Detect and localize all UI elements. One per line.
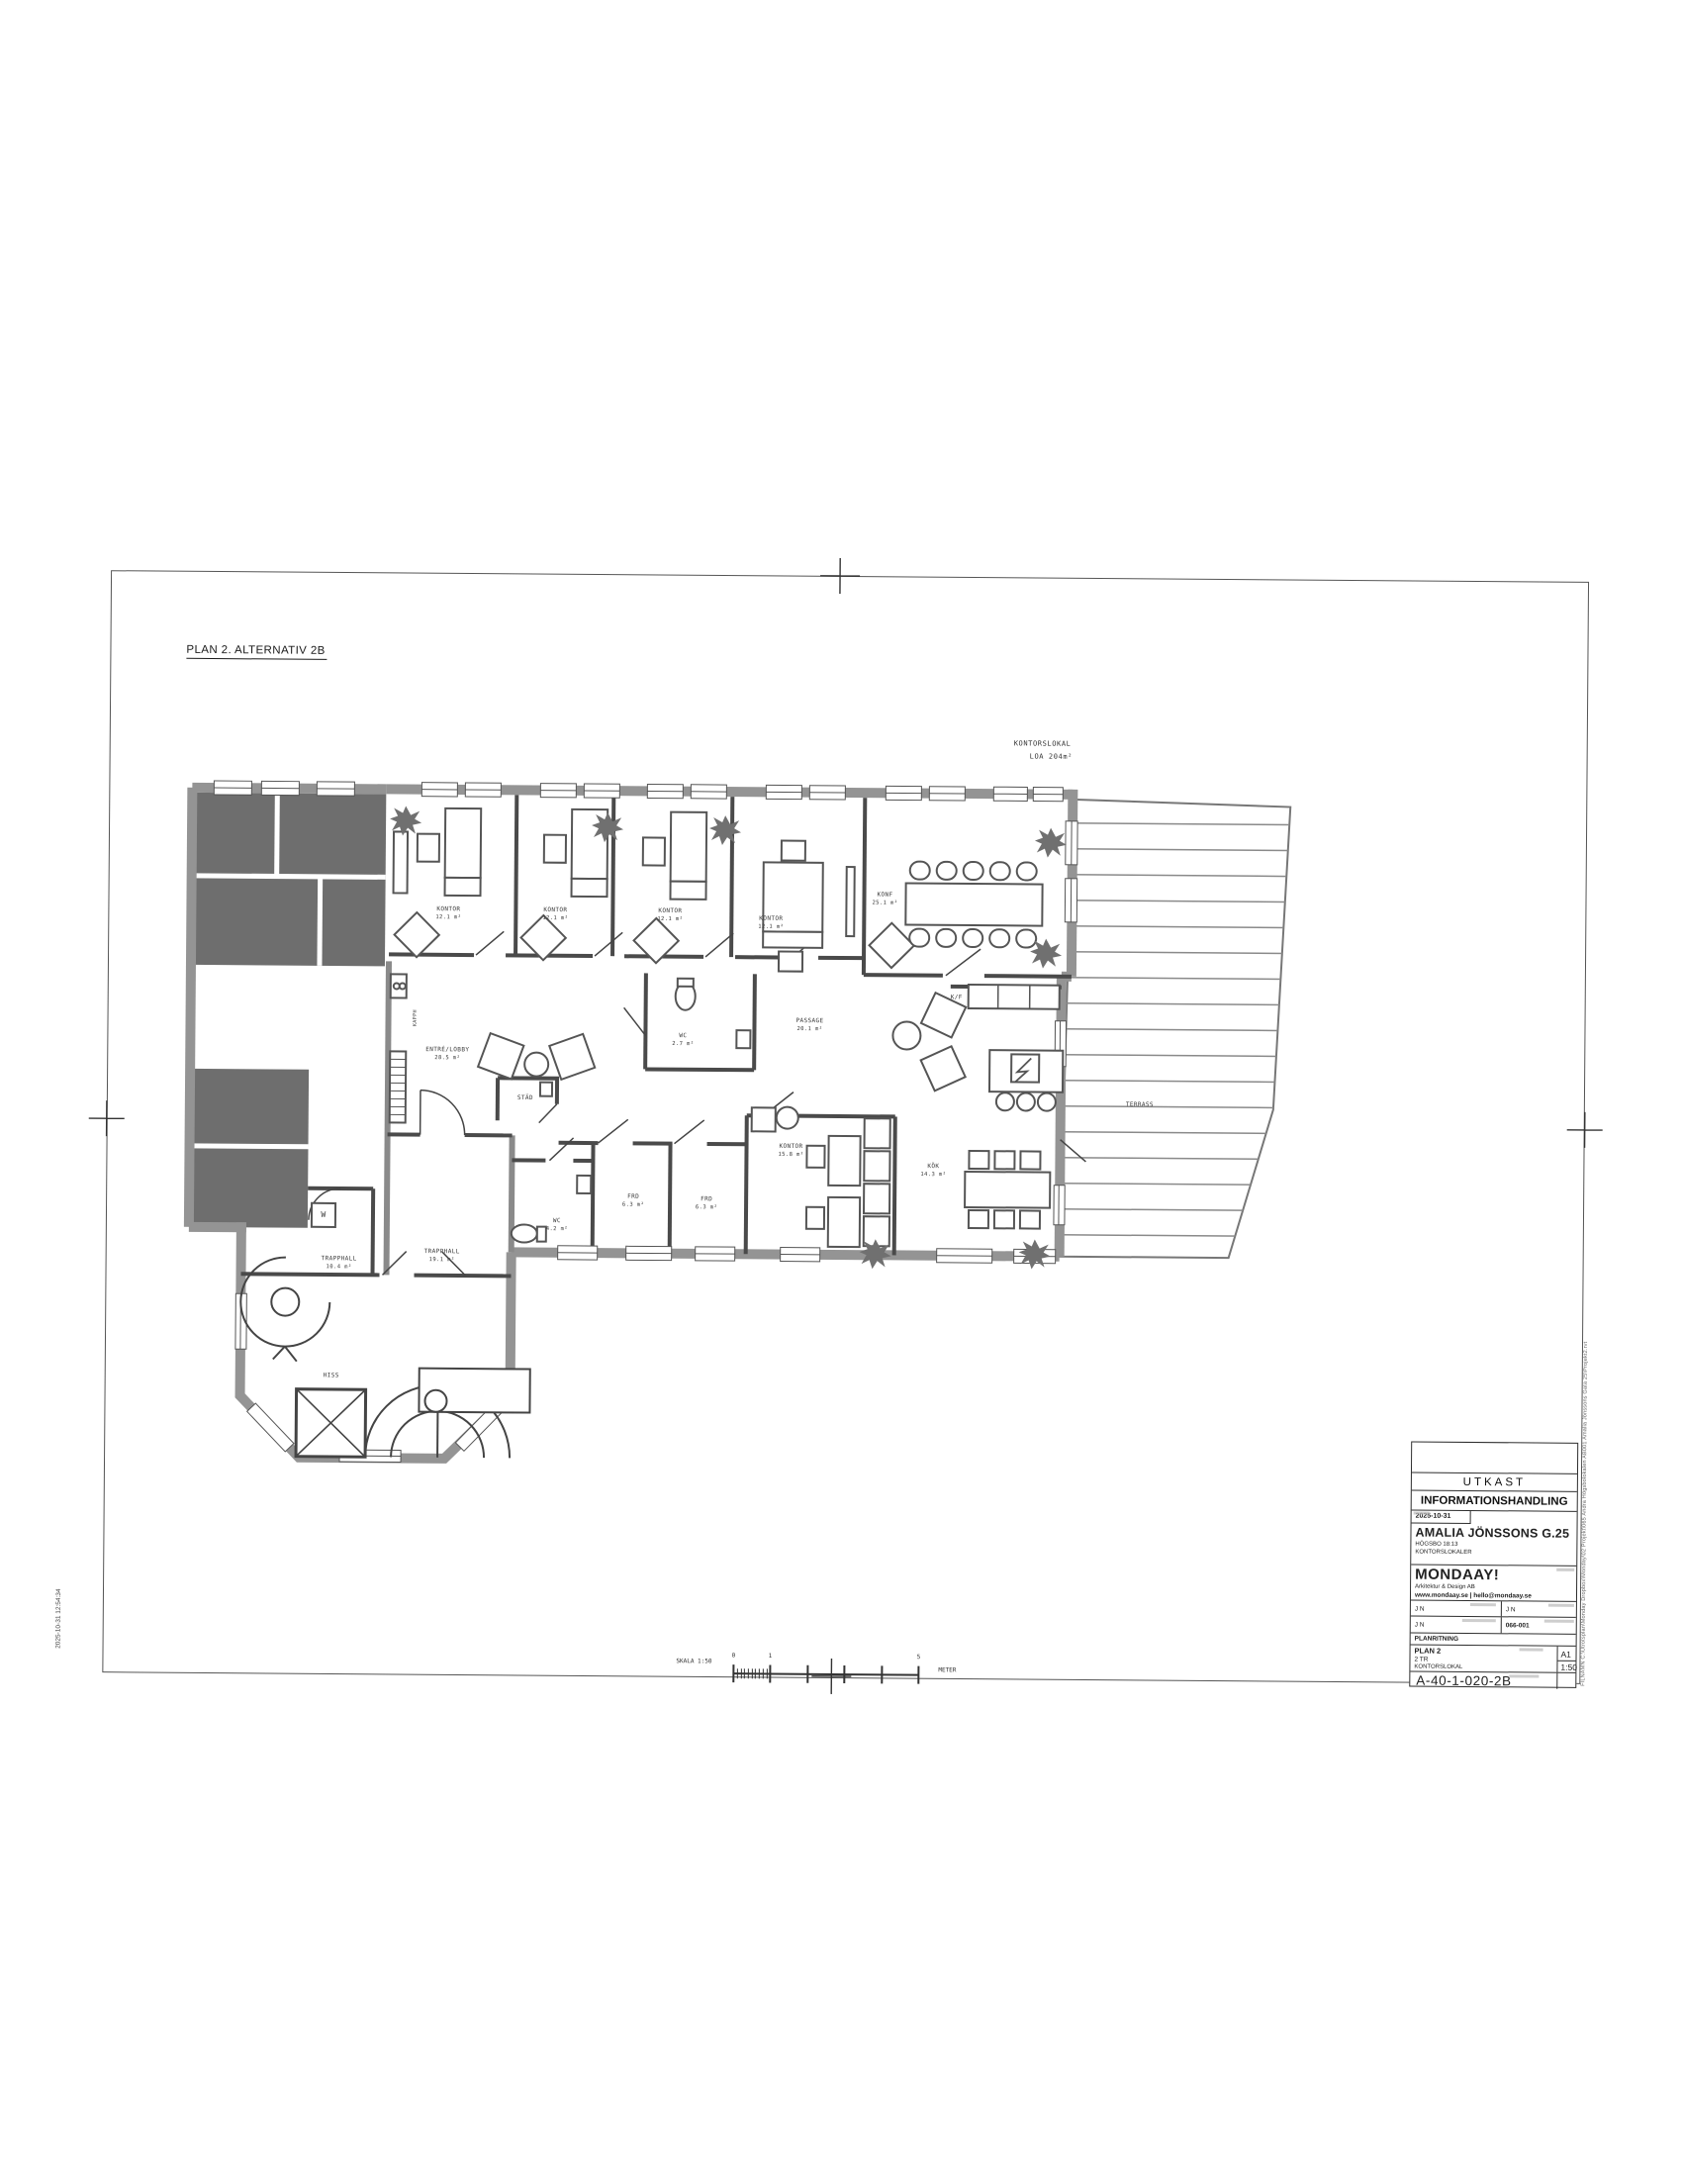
- company-logo: MONDAAY!: [1415, 1567, 1572, 1584]
- room-label-frd-2: FRD6.3 m²: [696, 1194, 717, 1211]
- room-label-hiss: HISS: [324, 1371, 339, 1379]
- room-label-entre: ENTRÉ/LOBBY28.5 m²: [425, 1045, 469, 1063]
- scale-bar: [733, 1664, 918, 1683]
- room-label-passage: PASSAGE20.1 m²: [795, 1016, 823, 1033]
- excluded-area: [189, 793, 386, 1229]
- scanned-drawing-page: { "sheet": { "plan_title": "PLAN 2. ALTE…: [0, 0, 1682, 2177]
- elevator: [296, 1389, 366, 1458]
- room-label-frd-1: FRD6.3 m²: [622, 1192, 644, 1209]
- field-label-mark: [1520, 1648, 1543, 1651]
- title-block-spacer: [1412, 1443, 1577, 1474]
- area-note-line1: KONTORSLOKAL: [1014, 737, 1073, 750]
- field-label-mark: [1548, 1604, 1574, 1607]
- status-label: UTKAST: [1412, 1473, 1577, 1492]
- room-label-terrass: TERRASS: [1126, 1100, 1154, 1109]
- terrace: [1058, 800, 1299, 1259]
- room-label-kontor-5: KONTOR15.8 m²: [778, 1142, 803, 1159]
- sign-row-1: J N J N: [1411, 1601, 1576, 1618]
- premises-type: KONTORSLOKALER: [1415, 1550, 1572, 1557]
- room-label-konf: KONF25.1 m²: [872, 891, 897, 907]
- room-label-wc-large: WC4.2 m²: [546, 1216, 568, 1233]
- scale-tick-0: 0: [732, 1653, 736, 1660]
- content-section: PLAN 2 2 TR KONTORSLOKAL A1 1:50: [1410, 1646, 1575, 1673]
- floor-plan: [0, 0, 1682, 2184]
- project-name: AMALIA JÖNSSONS G.25: [1415, 1526, 1572, 1541]
- drawing-sheet: PLAN 2. ALTERNATIV 2B KONTORSLOKAL LOA 2…: [0, 0, 1682, 2184]
- room-label-kontor-4: KONTOR12.1 m²: [758, 914, 784, 931]
- company-contact: www.mondaay.se | hello@mondaay.se: [1415, 1592, 1572, 1600]
- field-label-mark: [1509, 1674, 1539, 1677]
- sheet-format: A1: [1557, 1647, 1575, 1662]
- room-label-stad: STÄD: [517, 1093, 533, 1102]
- company-type: Arkitektur & Design AB: [1415, 1584, 1572, 1591]
- furniture: [312, 807, 1065, 1249]
- drawing-number: A-40-1-020-2B: [1410, 1672, 1575, 1689]
- project-section: AMALIA JÖNSSONS G.25 HÖGSBO 18:13 KONTOR…: [1411, 1524, 1576, 1567]
- sign-row-2: J N 066-001: [1411, 1617, 1576, 1635]
- registration-cross: [84, 552, 1607, 1700]
- field-label-mark: [1544, 1620, 1574, 1623]
- drawing-scale: 1:50: [1557, 1662, 1575, 1673]
- room-label-kok: KÖK14.3 m²: [920, 1162, 946, 1179]
- area-note: KONTORSLOKAL LOA 204m²: [1014, 737, 1074, 763]
- content-line2: 2 TR: [1414, 1657, 1556, 1664]
- field-label-mark: [1556, 1568, 1574, 1571]
- revision-cell: [1556, 1673, 1575, 1689]
- kf-label: K/F: [951, 993, 963, 1001]
- document-type-label: INFORMATIONSHANDLING: [1412, 1491, 1577, 1512]
- content-line3: KONTORSLOKAL: [1414, 1664, 1556, 1671]
- room-label-kontor-3: KONTOR12.1 m²: [657, 906, 683, 923]
- washer-icon: W: [321, 1209, 326, 1221]
- title-block: UTKAST INFORMATIONSHANDLING 2025-10-31 A…: [1409, 1442, 1578, 1688]
- field-label-mark: [1470, 1603, 1496, 1606]
- property-designation: HÖGSBO 18:13: [1415, 1542, 1572, 1549]
- room-label-kontor-2: KONTOR12.1 m²: [542, 905, 568, 922]
- kapph-label: KAPPH: [413, 1009, 420, 1026]
- area-note-line2: LOA 204m²: [1030, 750, 1073, 763]
- room-label-wc-small: WC2.7 m²: [672, 1031, 694, 1048]
- plan-title: PLAN 2. ALTERNATIV 2B: [186, 644, 327, 660]
- scale-label: SKALA 1:50: [676, 1658, 711, 1664]
- field-label-mark: [1462, 1619, 1496, 1622]
- date-row: 2025-10-31: [1412, 1511, 1577, 1525]
- scale-tick-1: 1: [769, 1653, 773, 1660]
- room-label-trapphall-2: TRAPPHALL10.4 m²: [321, 1254, 356, 1272]
- room-label-trapphall-1: TRAPPHALL19.1 m²: [424, 1247, 460, 1265]
- field-label-mark: [1414, 1512, 1430, 1515]
- format-column: A1 1:50: [1556, 1647, 1575, 1672]
- plot-timestamp: 2025-10-31 12:54:34: [55, 1530, 63, 1649]
- company-section: MONDAAY! Arkitektur & Design AB www.mond…: [1411, 1566, 1576, 1602]
- room-label-kontor-1: KONTOR12.1 m²: [435, 904, 461, 921]
- scale-unit: METER: [938, 1666, 956, 1673]
- scale-tick-5: 5: [917, 1654, 921, 1661]
